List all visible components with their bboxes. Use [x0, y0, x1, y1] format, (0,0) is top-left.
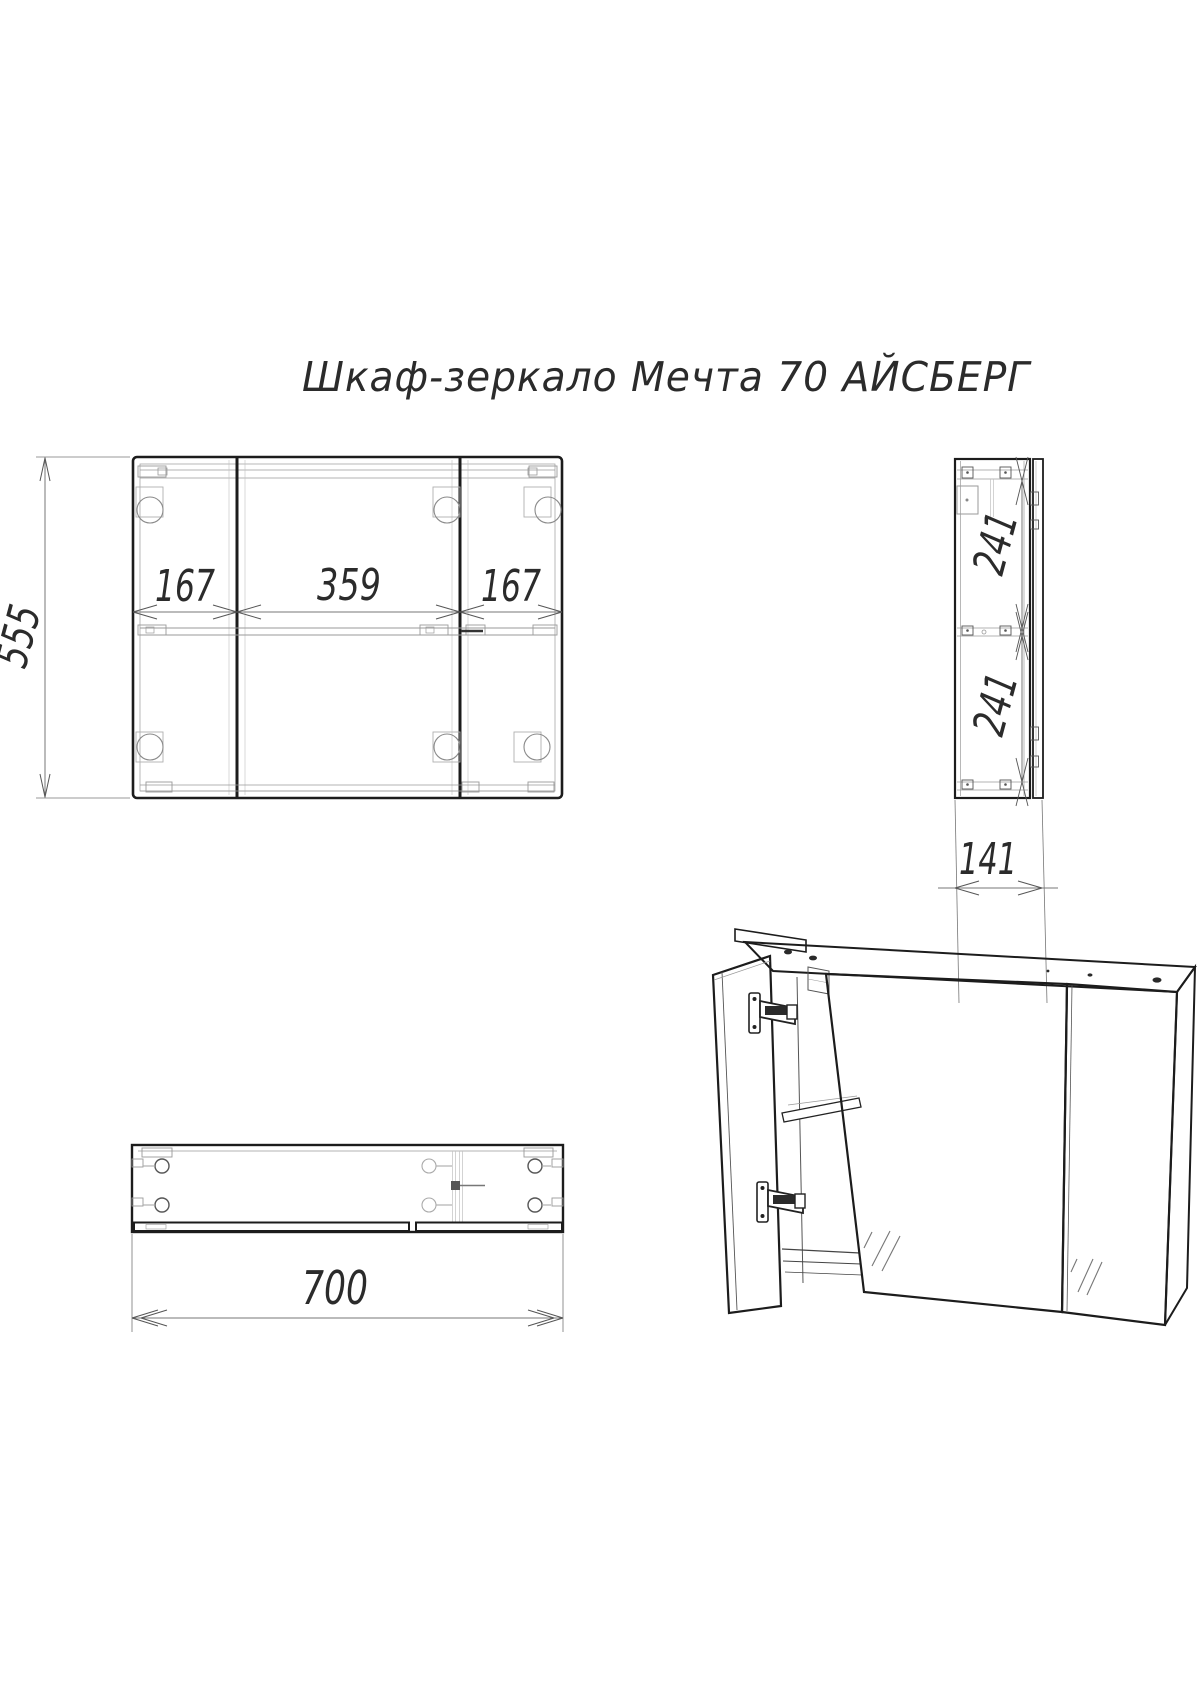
screw-hole [809, 956, 817, 961]
page-title: Шкаф-зеркало Мечта 70 АЙСБЕРГ [302, 353, 1032, 401]
plan-handle [451, 1181, 460, 1190]
screw-hole [1088, 973, 1093, 976]
dim-total-width: 700 [302, 1261, 368, 1315]
dim-front-left: 167 [155, 561, 215, 612]
drawing-sheet: Шкаф-зеркало Мечта 70 АЙСБЕРГ [0, 0, 1200, 1696]
screw-hole [784, 950, 792, 955]
dim-side-depth: 141 [959, 834, 1017, 885]
dim-front-middle: 359 [317, 560, 381, 611]
screw-hole [1153, 977, 1162, 982]
sheet-background [0, 0, 1200, 1696]
dim-front-right: 167 [481, 561, 541, 612]
